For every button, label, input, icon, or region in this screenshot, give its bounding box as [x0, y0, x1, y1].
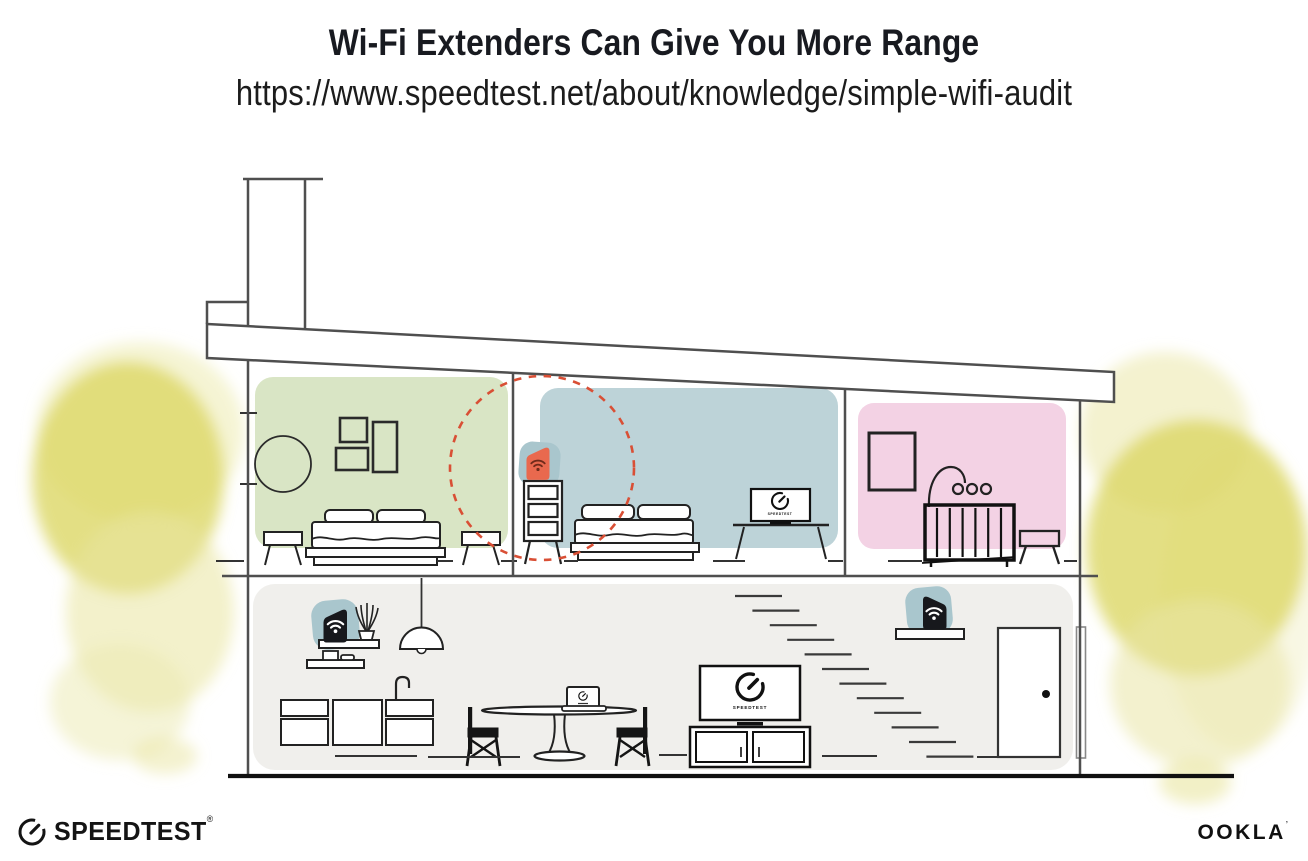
trademark-symbol: ®	[207, 814, 214, 824]
shelf-board	[896, 629, 964, 639]
foliage-right	[1080, 352, 1308, 804]
chimney	[243, 179, 323, 328]
tv-label: SPEEDTEST	[768, 512, 793, 516]
house-cutaway-illustration: SPEEDTEST	[0, 0, 1308, 861]
infographic-page: Wi-Fi Extenders Can Give You More Range …	[0, 0, 1308, 861]
ookla-wordmark: OOKLA	[1197, 821, 1285, 845]
door-knob	[1042, 690, 1050, 698]
tv-media-center: SPEEDTEST	[690, 666, 810, 767]
speedtest-gauge-icon	[17, 817, 47, 847]
roof-edge	[207, 302, 248, 324]
dresser	[524, 481, 562, 564]
trademark-symbol: ’	[1286, 820, 1288, 831]
speedtest-logo: SPEEDTEST®	[17, 816, 220, 847]
nightstand-left	[264, 532, 302, 565]
shelf-board	[307, 660, 364, 668]
cup	[323, 651, 338, 660]
laptop	[562, 687, 606, 711]
speedtest-wordmark: SPEEDTEST®	[54, 816, 214, 847]
double-bed	[571, 505, 699, 560]
tv-label: SPEEDTEST	[733, 705, 768, 710]
ookla-logo: OOKLA ’	[1197, 821, 1288, 845]
door	[998, 628, 1060, 757]
foliage-left	[32, 342, 244, 774]
bowl	[341, 655, 354, 660]
